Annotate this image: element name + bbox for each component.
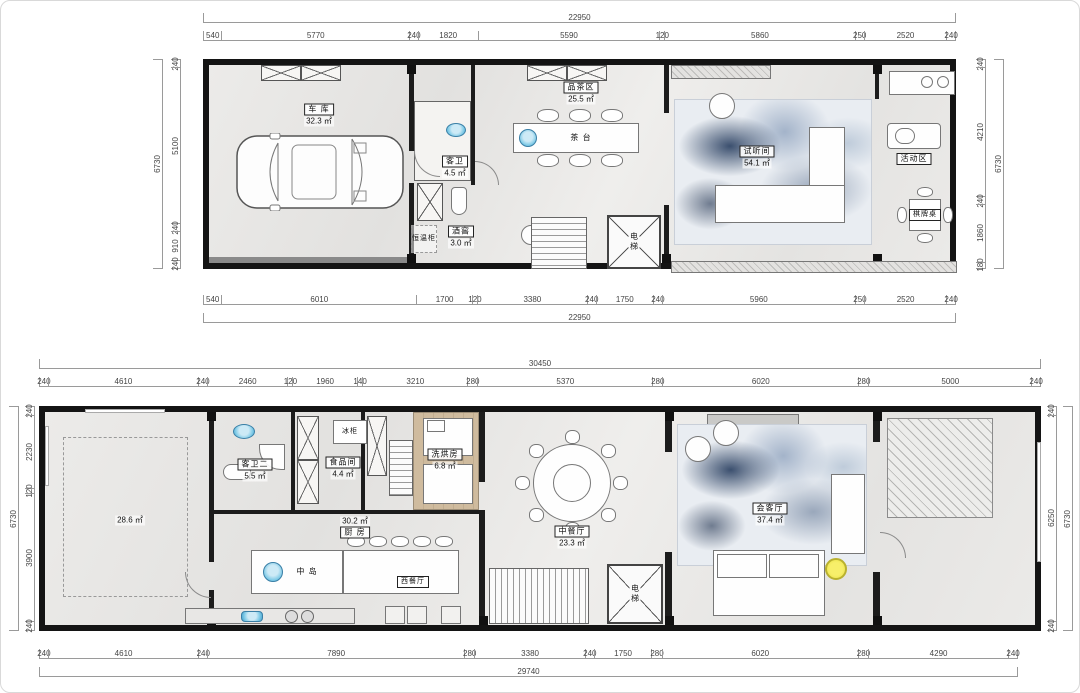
tea-sink-icon: [519, 129, 537, 147]
dim-segment: 2460: [207, 377, 288, 387]
f1-dim-top-total: 22950: [203, 13, 956, 23]
chair-icon: [565, 430, 580, 444]
room-label-garage: 车 库 32.3 ㎡: [304, 104, 334, 127]
dim-segment: 3380: [474, 649, 585, 659]
dim-segment: 5590: [478, 31, 660, 41]
island-sink-icon: [263, 562, 283, 582]
dim-label: 29740: [517, 668, 539, 676]
f2-wall-dining-left-top: [479, 412, 485, 482]
room-name: 洗烘房: [428, 449, 463, 461]
dim-segment: 6020: [662, 377, 858, 387]
car-icon: [234, 133, 406, 211]
f1-column: [873, 65, 882, 74]
room-area: 37.4 ㎡: [755, 516, 785, 526]
room-name: 冰柜: [339, 427, 361, 437]
room-name: 会客厅: [753, 503, 788, 515]
skylight-hatch: [887, 418, 993, 518]
dim-segment: 240: [198, 377, 207, 387]
room-label-laundry: 洗烘房 6.8 ㎡: [428, 449, 463, 472]
dim-segment: 5770: [221, 31, 409, 41]
f1-column: [407, 254, 416, 263]
dim-segment: 240: [1047, 406, 1057, 415]
chair-icon: [515, 476, 530, 490]
dim-segment: 240: [976, 59, 986, 67]
chair-icon: [601, 154, 623, 167]
chair-icon: [917, 187, 933, 197]
f1-closet: [301, 65, 341, 81]
dim-segment: 250: [855, 295, 864, 305]
dim-segment: 5960: [662, 295, 855, 305]
f2-wall-kitchen-top: [212, 510, 482, 514]
room-area: 4.5 ㎡: [442, 169, 467, 179]
dim-segment: 280: [467, 377, 477, 387]
chair-icon: [391, 536, 409, 547]
room-label-pantry: 食品间 4.4 ㎡: [326, 457, 361, 480]
dim-label: 240: [26, 619, 34, 632]
dim-label: 5000: [941, 378, 959, 386]
dim-segment: 250: [855, 31, 864, 41]
f1-column: [662, 254, 671, 263]
room-label-av: 试听间 54.1 ㎡: [740, 146, 775, 169]
room-name: 客卫: [442, 156, 468, 168]
chair-icon: [537, 154, 559, 167]
f1-garage-door-wall: [209, 257, 414, 263]
dim-segment: 240: [171, 59, 181, 67]
dim-segment: 280: [652, 377, 662, 387]
f1-stairs: [531, 217, 587, 269]
dim-label: 240: [1048, 619, 1056, 632]
f1-bath-closet: [417, 183, 443, 221]
f2-outer-walls: 电梯 28.6 ㎡ 客卫二 5.5 ㎡ 冰柜: [39, 406, 1041, 631]
washbasin-icon: [233, 424, 255, 439]
room-area: 25.5 ㎡: [566, 95, 596, 105]
f2-column: [479, 616, 488, 625]
dim-segment: 29740: [39, 667, 1018, 677]
dim-segment: 22950: [203, 13, 956, 23]
dim-segment: 240: [171, 260, 181, 269]
bar-sink-icon: [937, 76, 949, 88]
dim-segment: 240: [409, 31, 418, 41]
dim-label: 6020: [752, 378, 770, 386]
sofa-cushion: [717, 554, 767, 578]
f2-column: [665, 412, 674, 421]
dim-segment: 4210: [976, 67, 986, 196]
chair-icon: [569, 109, 591, 122]
dim-segment: 240: [1047, 621, 1057, 631]
dim-segment: 5100: [171, 67, 181, 223]
chair-icon: [529, 508, 544, 522]
room-area: 32.3 ㎡: [304, 117, 334, 127]
door-arc: [475, 161, 499, 185]
dim-label: 4290: [930, 650, 948, 658]
room-area: 6.8 ㎡: [432, 462, 457, 472]
chair-icon: [601, 444, 616, 458]
dim-segment: 6010: [221, 295, 416, 305]
f1-elevator-label: 电梯: [629, 232, 640, 252]
dim-label: 5770: [307, 32, 325, 40]
room-label-living: 会客厅 37.4 ㎡: [753, 503, 788, 526]
dim-label: 1750: [616, 296, 634, 304]
appliance-box: [407, 606, 427, 624]
f2-dim-right: 2406250240: [1047, 406, 1057, 631]
dim-segment: 1700: [416, 295, 472, 305]
room-label-tea-table: 茶 台: [567, 133, 594, 143]
door-arc: [185, 572, 211, 598]
treadmill-seat: [895, 128, 915, 144]
dim-label: 2460: [239, 378, 257, 386]
room-area: 4.4 ㎡: [330, 470, 355, 480]
room-name: 活动区: [897, 153, 932, 165]
dim-label: 1700: [436, 296, 454, 304]
room-label-cn-dining: 中餐厅 23.3 ㎡: [555, 526, 590, 549]
f2-dim-right-total: 6730: [1063, 406, 1073, 631]
f2-elevator-label: 电梯: [630, 584, 641, 604]
room-name: 客卫二: [238, 459, 273, 471]
dim-label: 6730: [10, 510, 18, 528]
chair-icon: [917, 233, 933, 243]
dim-segment: 4610: [48, 649, 199, 659]
f2-dim-top-total: 30450: [39, 359, 1041, 369]
dim-segment: 240: [976, 196, 986, 204]
dim-segment: 5860: [664, 31, 854, 41]
f2-dim-top: 2404610240246012019601403210280537028060…: [39, 377, 1041, 387]
kitchen-counter: [185, 608, 355, 624]
dim-segment: 5000: [868, 377, 1031, 387]
dim-segment: 22950: [203, 313, 956, 323]
dim-label: 4210: [977, 123, 985, 141]
chair-icon: [413, 536, 431, 547]
room-name: 品茶区: [564, 82, 599, 94]
dim-label: 910: [172, 239, 180, 252]
dim-label: 6010: [310, 296, 328, 304]
door-arc: [880, 532, 906, 558]
dim-label: 540: [206, 296, 219, 304]
dim-segment: 6250: [1047, 415, 1057, 621]
room-name: 厨 房: [340, 527, 369, 539]
dim-label: 240: [172, 258, 180, 271]
room-label-activity: 活动区: [897, 153, 932, 165]
room-name: 棋牌桌: [909, 209, 941, 221]
room-label-multi: 28.6 ㎡: [115, 515, 145, 526]
dim-label: 3380: [523, 296, 541, 304]
room-name: 车 库: [304, 104, 333, 116]
dim-label: 3210: [406, 378, 424, 386]
dim-label: 240: [1006, 650, 1019, 658]
f1-closet: [261, 65, 301, 81]
dim-segment: 240: [587, 295, 596, 305]
f1-dim-left-total: 6730: [153, 59, 163, 269]
bar-sink-icon: [921, 76, 933, 88]
dim-segment: 6730: [153, 59, 163, 269]
f2-wall-left-room: [209, 412, 214, 562]
f2-pantry-shelf: [367, 416, 387, 476]
dim-segment: 180: [976, 262, 986, 269]
sofa-horizontal: [715, 185, 845, 223]
armchair-icon: [685, 436, 711, 462]
dim-segment: 6730: [1063, 406, 1073, 631]
appliance-box: [441, 606, 461, 624]
washbasin-icon: [446, 123, 466, 137]
room-label-tea: 品茶区 25.5 ㎡: [564, 82, 599, 105]
dim-label: 5100: [172, 137, 180, 155]
room-area: 54.1 ㎡: [742, 159, 772, 169]
chair-icon: [601, 508, 616, 522]
dim-label: 6250: [1048, 510, 1056, 528]
dim-segment: 7890: [207, 649, 464, 659]
f2-wall-living-left: [665, 552, 672, 625]
chair-icon: [435, 536, 453, 547]
dim-segment: 280: [858, 377, 868, 387]
dim-label: 240: [944, 296, 957, 304]
dim-label: 540: [206, 32, 219, 40]
f2-column: [873, 616, 882, 625]
room-name: 恒温柜: [409, 234, 439, 244]
f1-wall-av-top: [664, 65, 669, 113]
f1-bar-cabinet: [527, 65, 567, 81]
room-label-wine-cabinet: 恒温柜: [409, 234, 439, 244]
window: [45, 426, 49, 486]
f1-bar-cabinet: [567, 65, 607, 81]
dim-segment: 3210: [362, 377, 467, 387]
dim-label: 22950: [568, 314, 590, 322]
f2-closet: [297, 460, 319, 504]
dim-segment: 6020: [662, 649, 858, 659]
dim-segment: 240: [25, 621, 35, 631]
f2-dim-bottom: 2404610240789028033802401750280602028042…: [39, 649, 1018, 659]
dim-label: 30450: [529, 360, 551, 368]
dim-segment: 1960: [292, 377, 356, 387]
dim-label: 1860: [977, 224, 985, 242]
f2-service-stairs: [389, 440, 413, 496]
dim-label: 180: [977, 259, 985, 272]
dim-label: 4610: [115, 378, 133, 386]
dim-label: 5860: [751, 32, 769, 40]
dim-segment: 240: [25, 406, 35, 415]
side-sofa: [831, 474, 865, 554]
dim-label: 2520: [897, 32, 915, 40]
chair-icon: [897, 207, 907, 223]
dim-segment: 240: [39, 377, 48, 387]
dim-segment: 240: [39, 649, 48, 659]
room-name: 茶 台: [567, 133, 594, 143]
dim-segment: 1750: [596, 295, 653, 305]
dim-segment: 1820: [418, 31, 478, 41]
f2-column: [665, 616, 674, 625]
sofa-cushion: [769, 554, 819, 578]
chair-icon: [537, 109, 559, 122]
room-name: 中 岛: [293, 567, 320, 577]
f1-av-cabinet: [671, 65, 771, 79]
chair-icon: [369, 536, 387, 547]
dim-segment: 240: [1031, 377, 1041, 387]
chair-icon: [601, 109, 623, 122]
chair-icon: [569, 154, 591, 167]
dim-segment: 240: [585, 649, 594, 659]
dim-segment: 240: [1008, 649, 1018, 659]
dim-segment: 280: [651, 649, 661, 659]
toilet-icon: [451, 187, 467, 215]
dim-segment: 540: [203, 31, 221, 41]
room-area: 30.2 ㎡: [340, 517, 370, 527]
f2-stairs: [489, 568, 589, 624]
dim-segment: 4290: [868, 649, 1008, 659]
floor-plan-canvas: 22950 5405770240182055901205860250252024…: [0, 0, 1080, 693]
f1-dim-right-total: 6730: [994, 59, 1004, 269]
dim-label: 2520: [897, 296, 915, 304]
room-name: 中餐厅: [555, 526, 590, 538]
chair-icon: [943, 207, 953, 223]
dim-label: 240: [944, 32, 957, 40]
room-name: 食品间: [326, 457, 361, 469]
room-area: 28.6 ㎡: [115, 516, 145, 526]
f1-dim-bottom: 5406010170012033802401750240596025025202…: [203, 295, 956, 305]
f2-dim-left: 24022301203900240: [25, 406, 35, 631]
dim-segment: 240: [198, 649, 207, 659]
f2-closet: [297, 416, 319, 460]
yellow-side-table-icon: [825, 558, 847, 580]
dim-label: 6020: [751, 650, 769, 658]
room-name: 酒窖: [448, 226, 474, 238]
room-label-kitchen: 厨 房 30.2 ㎡: [340, 516, 370, 539]
dim-label: 22950: [568, 14, 590, 22]
chair-icon: [529, 444, 544, 458]
f1-elevator: 电梯: [607, 215, 661, 269]
dim-segment: 3900: [25, 493, 35, 621]
dim-segment: 2520: [864, 31, 946, 41]
dim-label: 1960: [316, 378, 334, 386]
dim-label: 4610: [115, 650, 133, 658]
cooktop-icon: [285, 610, 298, 623]
f2-wall-dining-left: [479, 510, 485, 625]
dim-label: 2230: [26, 443, 34, 461]
dim-label: 240: [1029, 378, 1042, 386]
dim-segment: 240: [946, 31, 956, 41]
dim-label: 6730: [995, 155, 1003, 173]
cooktop-icon: [301, 610, 314, 623]
dim-label: 5590: [560, 32, 578, 40]
pillow-icon: [427, 420, 445, 432]
room-name: 试听间: [740, 146, 775, 158]
room-name: 西餐厅: [397, 576, 429, 588]
f2-wall-bath2: [291, 412, 295, 512]
f2-elevator: 电梯: [607, 564, 663, 624]
room-label-chess: 棋牌桌: [909, 209, 941, 221]
room-label-west-dining: 西餐厅: [397, 576, 429, 588]
dim-label: 3900: [26, 549, 34, 567]
dim-segment: 2520: [864, 295, 946, 305]
f2-dim-bottom-total: 29740: [39, 667, 1018, 677]
dim-segment: 30450: [39, 359, 1041, 369]
room-area: 23.3 ㎡: [557, 539, 587, 549]
dim-segment: 5370: [477, 377, 652, 387]
appliance-box: [385, 606, 405, 624]
f1-outer-walls: 电梯: [203, 59, 956, 269]
dim-segment: 540: [203, 295, 221, 305]
dim-segment: 910: [171, 231, 181, 260]
dim-label: 7890: [327, 650, 345, 658]
chair-icon: [613, 476, 628, 490]
window: [1037, 442, 1041, 562]
f2-column: [207, 412, 216, 421]
f2-column: [873, 412, 882, 421]
dim-label: 5960: [750, 296, 768, 304]
window: [85, 409, 165, 413]
dim-segment: 240: [653, 295, 662, 305]
f1-dim-right: 24042102401860180: [976, 59, 986, 269]
dim-label: 1750: [614, 650, 632, 658]
media-cabinet: [671, 261, 957, 273]
dim-label: 6730: [154, 155, 162, 173]
armchair-icon: [713, 420, 739, 446]
lazy-susan: [553, 464, 591, 502]
dim-segment: 240: [171, 223, 181, 231]
room-label-guest-bath: 客卫 4.5 ㎡: [442, 156, 468, 179]
f1-dim-top: 54057702401820559012058602502520240: [203, 31, 956, 41]
room-label-island: 中 岛: [293, 567, 320, 577]
kitchen-sink-icon: [241, 611, 263, 622]
f1-dim-left: 2405100240910240: [171, 59, 181, 269]
f1-column: [407, 65, 416, 74]
dim-segment: 1750: [594, 649, 652, 659]
dim-label: 3380: [521, 650, 539, 658]
dim-label: 1820: [439, 32, 457, 40]
dim-label: 5370: [556, 378, 574, 386]
dim-segment: 3380: [477, 295, 587, 305]
f1-dim-bottom-total: 22950: [203, 313, 956, 323]
dim-label: 6730: [1064, 510, 1072, 528]
dim-segment: 280: [464, 649, 474, 659]
f2-dim-left-total: 6730: [9, 406, 19, 631]
room-area: 3.0 ㎡: [448, 239, 473, 249]
dim-segment: 6730: [9, 406, 19, 631]
dim-segment: 6730: [994, 59, 1004, 269]
sofa-vertical: [809, 127, 845, 187]
dim-segment: 280: [858, 649, 868, 659]
dim-segment: 4610: [48, 377, 198, 387]
dim-segment: 2230: [25, 415, 35, 489]
room-label-freezer: 冰柜: [339, 427, 361, 437]
room-label-wine: 酒窖 3.0 ㎡: [448, 226, 474, 249]
dim-segment: 240: [946, 295, 956, 305]
side-table-icon: [709, 93, 735, 119]
room-label-bath2: 客卫二 5.5 ㎡: [238, 459, 273, 482]
room-area: 5.5 ㎡: [242, 472, 267, 482]
dim-segment: 1860: [976, 204, 986, 261]
